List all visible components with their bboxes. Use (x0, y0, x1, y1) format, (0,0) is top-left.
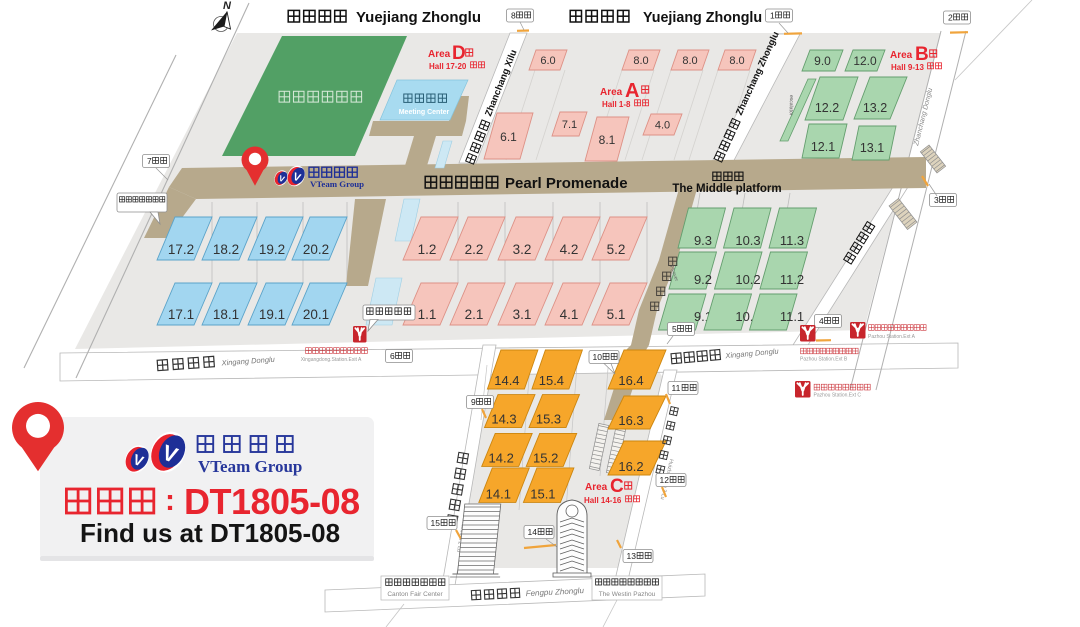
svg-text:15.3: 15.3 (536, 412, 561, 427)
svg-text:5: 5 (672, 324, 677, 334)
svg-text:Canton Fair Center: Canton Fair Center (387, 591, 443, 598)
svg-text::: : (165, 484, 175, 517)
svg-text:Hall 17-20: Hall 17-20 (429, 62, 467, 71)
svg-text:11: 11 (672, 383, 681, 393)
svg-text:9.3: 9.3 (694, 233, 712, 248)
svg-text:8.0: 8.0 (633, 55, 648, 67)
svg-text:Pazhou Station.Ext C: Pazhou Station.Ext C (814, 393, 862, 399)
svg-text:VTeam Group: VTeam Group (198, 457, 302, 476)
svg-text:16.3: 16.3 (618, 413, 643, 428)
svg-text:9: 9 (471, 397, 476, 407)
svg-text:13.1: 13.1 (860, 141, 884, 155)
svg-text:The Westin Pazhou: The Westin Pazhou (599, 591, 656, 598)
svg-text:20.2: 20.2 (303, 242, 329, 257)
svg-text:Area: Area (600, 87, 623, 98)
svg-text:6: 6 (390, 351, 395, 361)
svg-text:6.1: 6.1 (500, 130, 517, 144)
svg-text:3.2: 3.2 (513, 242, 532, 257)
svg-text:C: C (610, 476, 624, 497)
svg-text:4: 4 (819, 316, 824, 326)
svg-text:8: 8 (511, 11, 516, 21)
svg-text:16.4: 16.4 (618, 373, 643, 388)
svg-text:15.1: 15.1 (530, 486, 555, 501)
svg-text:10.2: 10.2 (735, 272, 760, 287)
svg-text:Find us at DT1805-08: Find us at DT1805-08 (80, 518, 340, 548)
svg-text:1: 1 (770, 11, 775, 21)
svg-text:1.1: 1.1 (418, 307, 437, 322)
svg-text:18.1: 18.1 (213, 307, 239, 322)
svg-text:15.2: 15.2 (533, 450, 558, 465)
svg-text:11.1: 11.1 (780, 309, 804, 324)
svg-text:12: 12 (660, 475, 670, 485)
svg-text:4.0: 4.0 (655, 120, 670, 132)
svg-text:2.1: 2.1 (465, 307, 484, 322)
svg-text:9.2: 9.2 (694, 272, 712, 287)
svg-text:Xingangdong.Station.Exit A: Xingangdong.Station.Exit A (301, 357, 362, 363)
svg-text:1.2: 1.2 (418, 242, 437, 257)
svg-text:Hall 14-16: Hall 14-16 (584, 496, 622, 505)
svg-text:VTeam Group: VTeam Group (310, 179, 364, 189)
svg-text:20.1: 20.1 (303, 307, 329, 322)
svg-text:5.1: 5.1 (607, 307, 626, 322)
svg-text:Area: Area (585, 482, 608, 493)
svg-text:Meeting Center: Meeting Center (399, 109, 450, 116)
svg-text:12.2: 12.2 (815, 101, 839, 115)
svg-text:11.2: 11.2 (780, 272, 804, 287)
svg-text:12.0: 12.0 (853, 54, 877, 68)
svg-text:5.2: 5.2 (607, 242, 626, 257)
svg-text:escalator: escalator (788, 95, 794, 116)
svg-text:D: D (452, 43, 466, 64)
svg-text:14.4: 14.4 (494, 373, 519, 388)
svg-text:Yuejiang Zhonglu: Yuejiang Zhonglu (643, 10, 762, 26)
svg-text:A: A (625, 80, 639, 102)
svg-text:11.3: 11.3 (780, 233, 804, 248)
svg-text:15: 15 (431, 518, 441, 528)
svg-text:The Middle platform: The Middle platform (672, 183, 781, 195)
svg-text:18.2: 18.2 (213, 242, 239, 257)
svg-text:2.2: 2.2 (465, 242, 484, 257)
svg-text:B: B (915, 44, 929, 65)
svg-text:15.4: 15.4 (539, 373, 564, 388)
svg-text:7: 7 (147, 156, 152, 166)
svg-text:Hall 9-13: Hall 9-13 (891, 63, 924, 72)
svg-text:Area: Area (428, 49, 451, 60)
svg-text:19.1: 19.1 (259, 307, 285, 322)
svg-text:13: 13 (627, 551, 637, 561)
svg-text:DT1805-08: DT1805-08 (184, 481, 360, 522)
svg-text:2: 2 (948, 13, 953, 23)
svg-text:17.1: 17.1 (168, 307, 194, 322)
svg-text:8.0: 8.0 (682, 55, 697, 67)
svg-text:8.1: 8.1 (599, 133, 616, 147)
svg-text:8.0: 8.0 (729, 55, 744, 67)
svg-text:9.0: 9.0 (814, 54, 831, 68)
svg-text:12.1: 12.1 (811, 140, 835, 154)
svg-text:14.3: 14.3 (491, 412, 516, 427)
svg-text:Area: Area (890, 50, 913, 61)
svg-text:14.1: 14.1 (486, 486, 511, 501)
svg-text:Pazhou Station.Ext A: Pazhou Station.Ext A (868, 334, 916, 340)
svg-text:7.1: 7.1 (562, 119, 577, 131)
svg-text:Yuejiang Zhonglu: Yuejiang Zhonglu (356, 9, 481, 26)
svg-text:Pearl Promenade: Pearl Promenade (505, 175, 628, 192)
svg-text:Hall 1-8: Hall 1-8 (602, 100, 631, 109)
svg-text:Pazhou Station.Ext B: Pazhou Station.Ext B (800, 357, 848, 363)
svg-text:10.3: 10.3 (735, 233, 760, 248)
svg-text:N: N (223, 0, 232, 12)
svg-text:4.2: 4.2 (560, 242, 579, 257)
svg-text:14.2: 14.2 (489, 450, 514, 465)
svg-text:3.1: 3.1 (513, 307, 532, 322)
svg-text:19.2: 19.2 (259, 242, 285, 257)
svg-text:10: 10 (593, 352, 603, 362)
svg-text:13.2: 13.2 (863, 101, 887, 115)
svg-text:6.0: 6.0 (540, 55, 555, 67)
svg-text:14: 14 (528, 527, 538, 537)
svg-text:16.2: 16.2 (618, 459, 643, 474)
svg-text:17.2: 17.2 (168, 242, 194, 257)
svg-text:3: 3 (934, 195, 939, 205)
svg-text:4.1: 4.1 (560, 307, 579, 322)
